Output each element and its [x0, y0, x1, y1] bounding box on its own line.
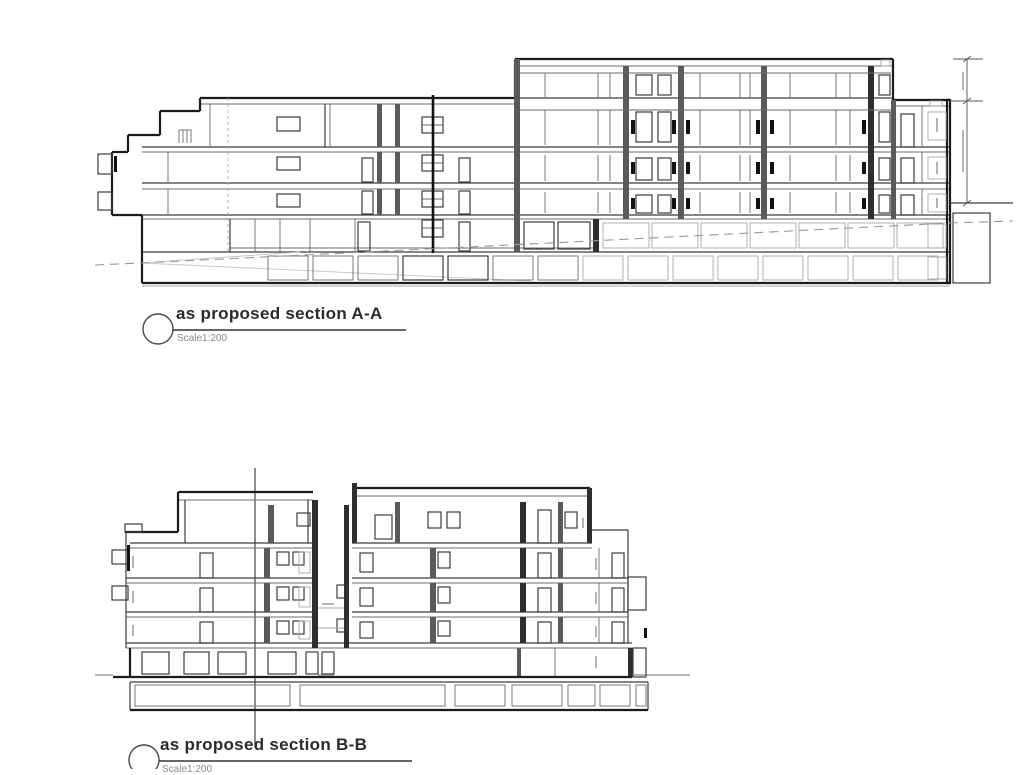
section-b-basement [130, 682, 648, 710]
section-marker-circle [143, 314, 173, 344]
section-b-right-block [360, 502, 624, 643]
section-a-floor-slabs [142, 98, 950, 286]
section-a-dimension-line [950, 56, 1013, 206]
section-a-a-drawing [95, 56, 1013, 286]
section-a-left-block [168, 104, 470, 215]
section-a-scale-label: Scale1:200 [177, 333, 227, 344]
section-b-lightwell [318, 505, 349, 675]
section-marker-circle [129, 745, 159, 769]
sections-drawing-canvas [0, 0, 1024, 769]
section-b-title: as proposed section B-B [160, 735, 367, 755]
section-b-cut-line-through-a [228, 95, 433, 253]
section-a-window-grid [520, 73, 891, 213]
section-b-roof-outline [112, 483, 647, 648]
section-b-scale-label: Scale1:200 [162, 764, 212, 775]
section-a-right-block [901, 106, 946, 279]
section-b-floor-slabs [126, 543, 632, 648]
section-b-ground-floor [95, 648, 690, 677]
section-a-ground-floor [230, 219, 943, 252]
section-b-b-drawing [95, 468, 690, 747]
section-a-title: as proposed section A-A [176, 304, 383, 324]
section-b-left-block [133, 500, 318, 648]
architectural-drawing-sheet: { "document": { "background_color": "#ff… [0, 0, 1024, 769]
